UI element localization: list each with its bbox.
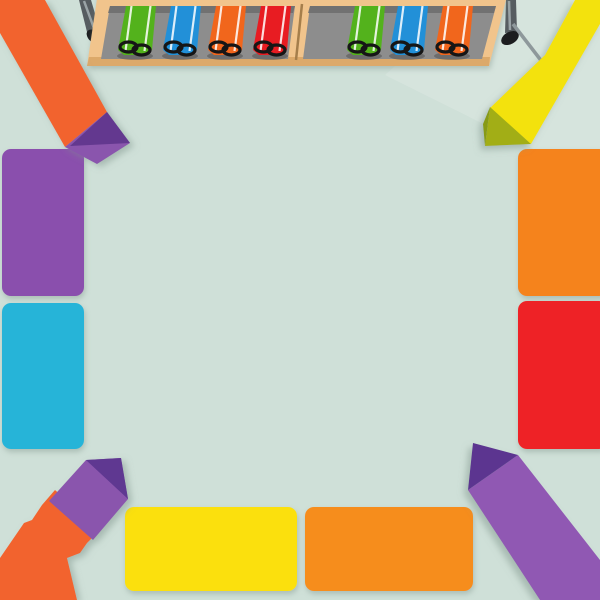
block-yellow <box>125 507 297 591</box>
scene-svg <box>0 0 600 600</box>
block-orange-right <box>518 149 600 296</box>
illustration-canvas <box>0 0 600 600</box>
leg-highlight <box>509 1 510 30</box>
block-cyan <box>2 303 84 449</box>
block-red <box>518 301 600 449</box>
block-purple <box>2 149 84 296</box>
marker-caddy <box>87 0 508 66</box>
block-orange-bottom <box>305 507 473 591</box>
